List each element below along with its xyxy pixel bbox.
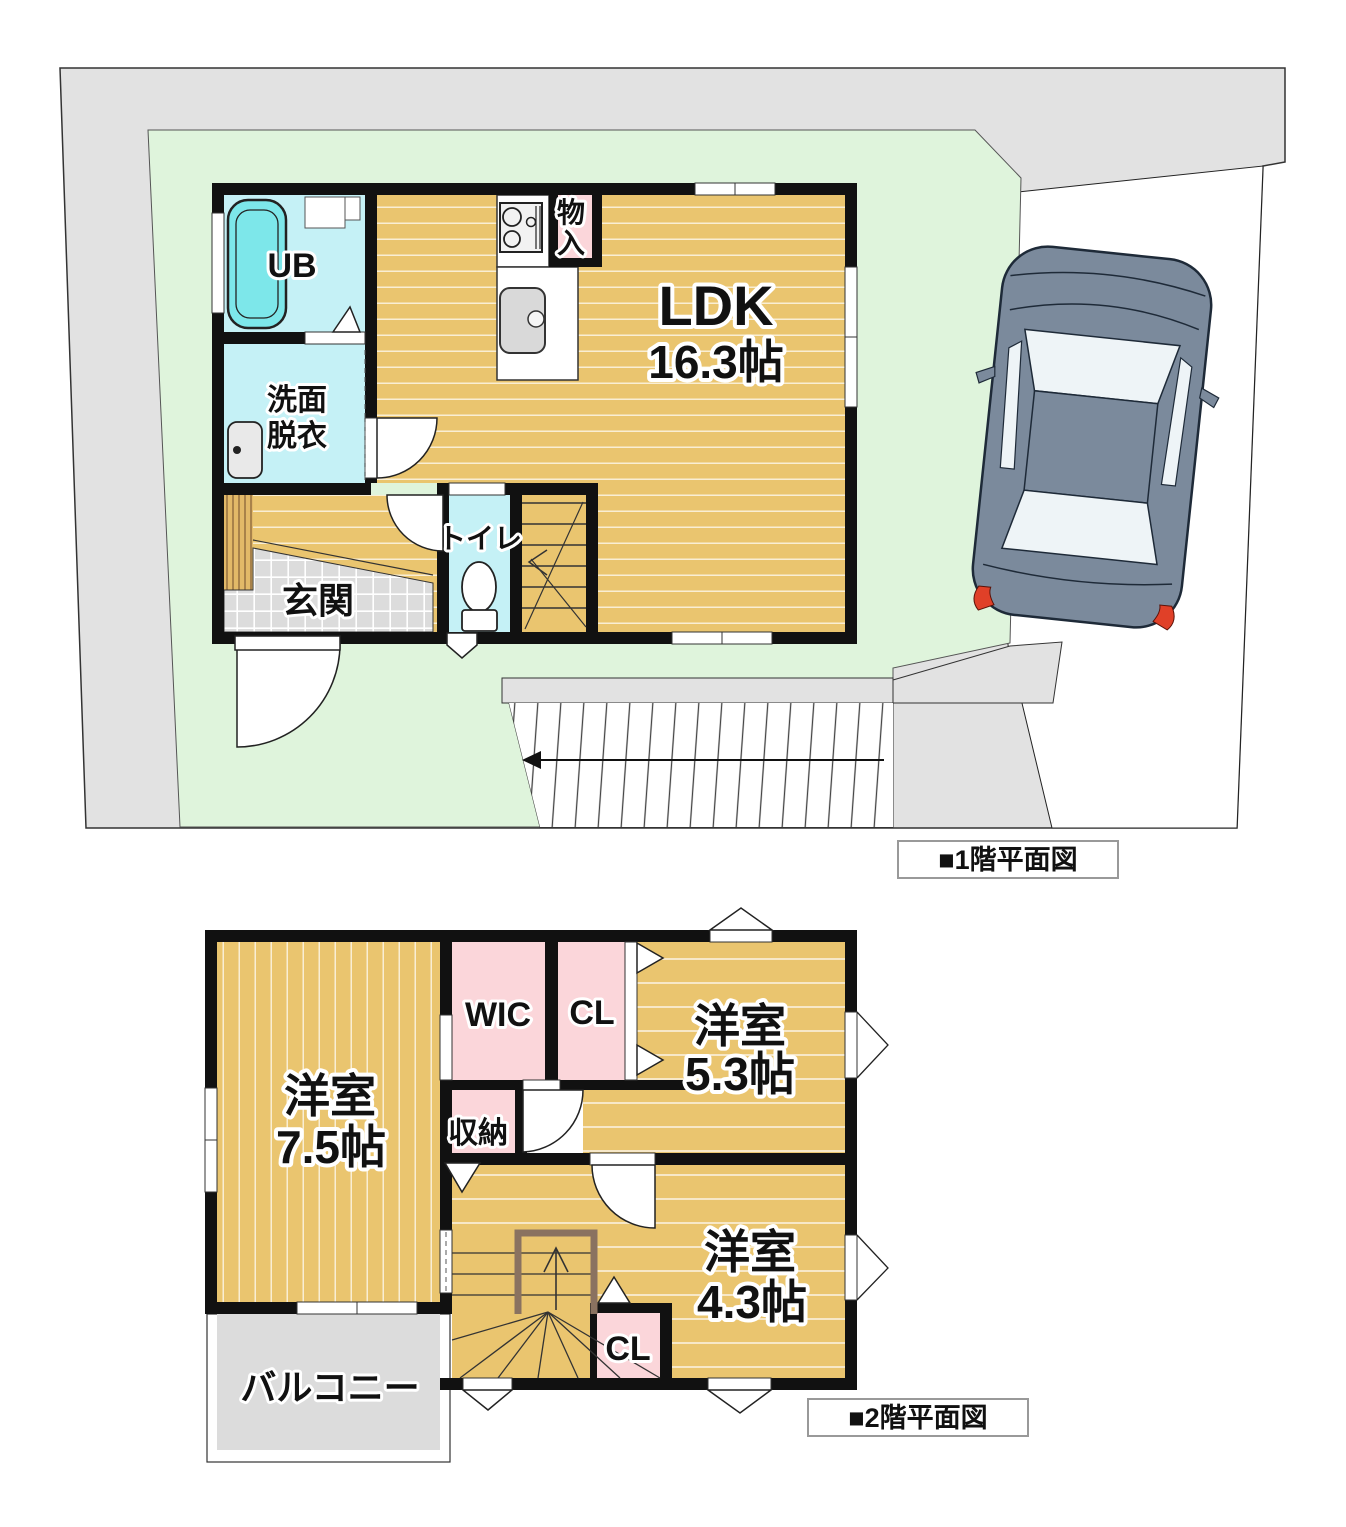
balcony-label: バルコニー — [240, 1367, 419, 1408]
stove-icon — [500, 203, 542, 252]
retaining-wall-band — [502, 678, 893, 703]
bottom-left-door-marker — [463, 1390, 512, 1410]
caption-floor1-text: ■1階平面図 — [938, 845, 1077, 875]
toilet-icon — [462, 562, 497, 631]
window-top-53 — [710, 930, 772, 942]
ub-counter — [305, 197, 345, 228]
stairs-2f-floor — [452, 1230, 597, 1378]
entrance-label: 玄関 — [282, 580, 354, 621]
opening-wic-door — [440, 1015, 452, 1080]
outdoor-steps — [509, 703, 893, 827]
bottom-right-door-marker — [708, 1390, 771, 1413]
storage-1f-label: 物入 — [557, 197, 585, 259]
ub-counter-small — [345, 197, 360, 220]
room53-size-label: 5.3帖 — [685, 1048, 795, 1100]
room75-size-label: 7.5帖 — [276, 1121, 386, 1173]
washroom-label-line1: 洗面 — [267, 384, 327, 417]
opening-washroom-ldk — [365, 418, 377, 478]
opening-bottom-left — [463, 1378, 512, 1390]
wic-label: WIC — [465, 996, 531, 1034]
opening-43-door — [590, 1153, 655, 1165]
window-top-triangle — [710, 908, 772, 930]
window-right-53 — [845, 1012, 857, 1078]
washroom-label-line2: 脱衣 — [267, 420, 327, 453]
room53-label: 洋室 — [694, 1000, 786, 1052]
opening-hall-door — [523, 1080, 560, 1090]
opening-ub-washroom — [305, 332, 365, 344]
floor2-plan: 洋室 7.5帖 WIC CL 洋室 5.3帖 収納 洋室 4.3帖 CL バルコ… — [205, 908, 888, 1462]
room75-label: 洋室 — [284, 1070, 376, 1122]
car-roof — [1024, 391, 1158, 503]
ldk-label: LDK — [658, 274, 773, 337]
ub-label: UB — [267, 247, 316, 285]
room43-size-label: 4.3帖 — [697, 1276, 807, 1328]
caption-floor1: ■1階平面図 — [898, 841, 1118, 878]
storage-2f-label: 収納 — [448, 1117, 508, 1150]
room43-label: 洋室 — [704, 1226, 796, 1278]
opening-toilet-door — [449, 483, 505, 495]
washstand-icon — [228, 422, 262, 478]
kitchen-sink-icon — [500, 288, 545, 353]
cl-upper-door-band — [625, 942, 637, 1080]
floorplan-svg: LDK 16.3帖 UB 洗面 脱衣 トイレ 玄関 物入 ■1階平面図 — [0, 0, 1346, 1527]
caption-floor2-text: ■2階平面図 — [848, 1403, 987, 1433]
caption-floor2: ■2階平面図 — [808, 1399, 1028, 1436]
window-right-43 — [845, 1235, 857, 1300]
floorplan-page: LDK 16.3帖 UB 洗面 脱衣 トイレ 玄関 物入 ■1階平面図 — [0, 0, 1346, 1527]
door-53-arc — [523, 1090, 583, 1152]
ldk-size-label: 16.3帖 — [648, 336, 784, 388]
entrance-wood-strip — [224, 495, 253, 590]
casement-right-53 — [857, 1012, 888, 1078]
casement-right-43 — [857, 1235, 888, 1300]
cl-upper-label: CL — [569, 994, 614, 1032]
toilet-label: トイレ — [438, 523, 522, 554]
window-left-ub — [212, 213, 224, 313]
cl-lower-label: CL — [605, 1330, 650, 1368]
opening-bottom-right — [708, 1378, 771, 1390]
